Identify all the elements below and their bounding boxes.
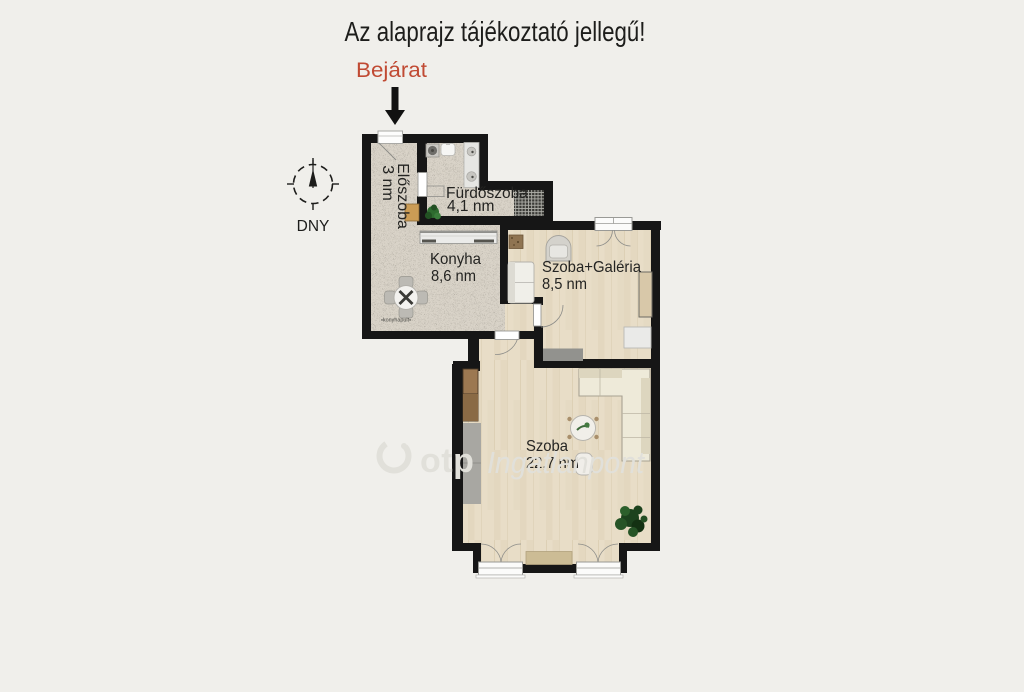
svg-text:4,1 nm: 4,1 nm xyxy=(447,198,494,215)
svg-text:▪konyhapult▪: ▪konyhapult▪ xyxy=(381,318,411,324)
svg-text:Szoba+Galéria: Szoba+Galéria xyxy=(542,259,641,276)
svg-text:Ingatlanpont: Ingatlanpont xyxy=(487,445,645,480)
svg-text:8,5 nm: 8,5 nm xyxy=(542,276,587,293)
svg-text:8,6 nm: 8,6 nm xyxy=(431,268,476,285)
svg-text:otp: otp xyxy=(420,442,474,480)
svg-text:Bejárat: Bejárat xyxy=(356,58,427,82)
svg-text:3 nm: 3 nm xyxy=(379,165,396,201)
svg-text:Konyha: Konyha xyxy=(430,251,481,268)
svg-text:DNY: DNY xyxy=(297,218,330,235)
svg-text:Az alaprajz tájékoztató jelleg: Az alaprajz tájékoztató jellegű! xyxy=(345,16,646,47)
